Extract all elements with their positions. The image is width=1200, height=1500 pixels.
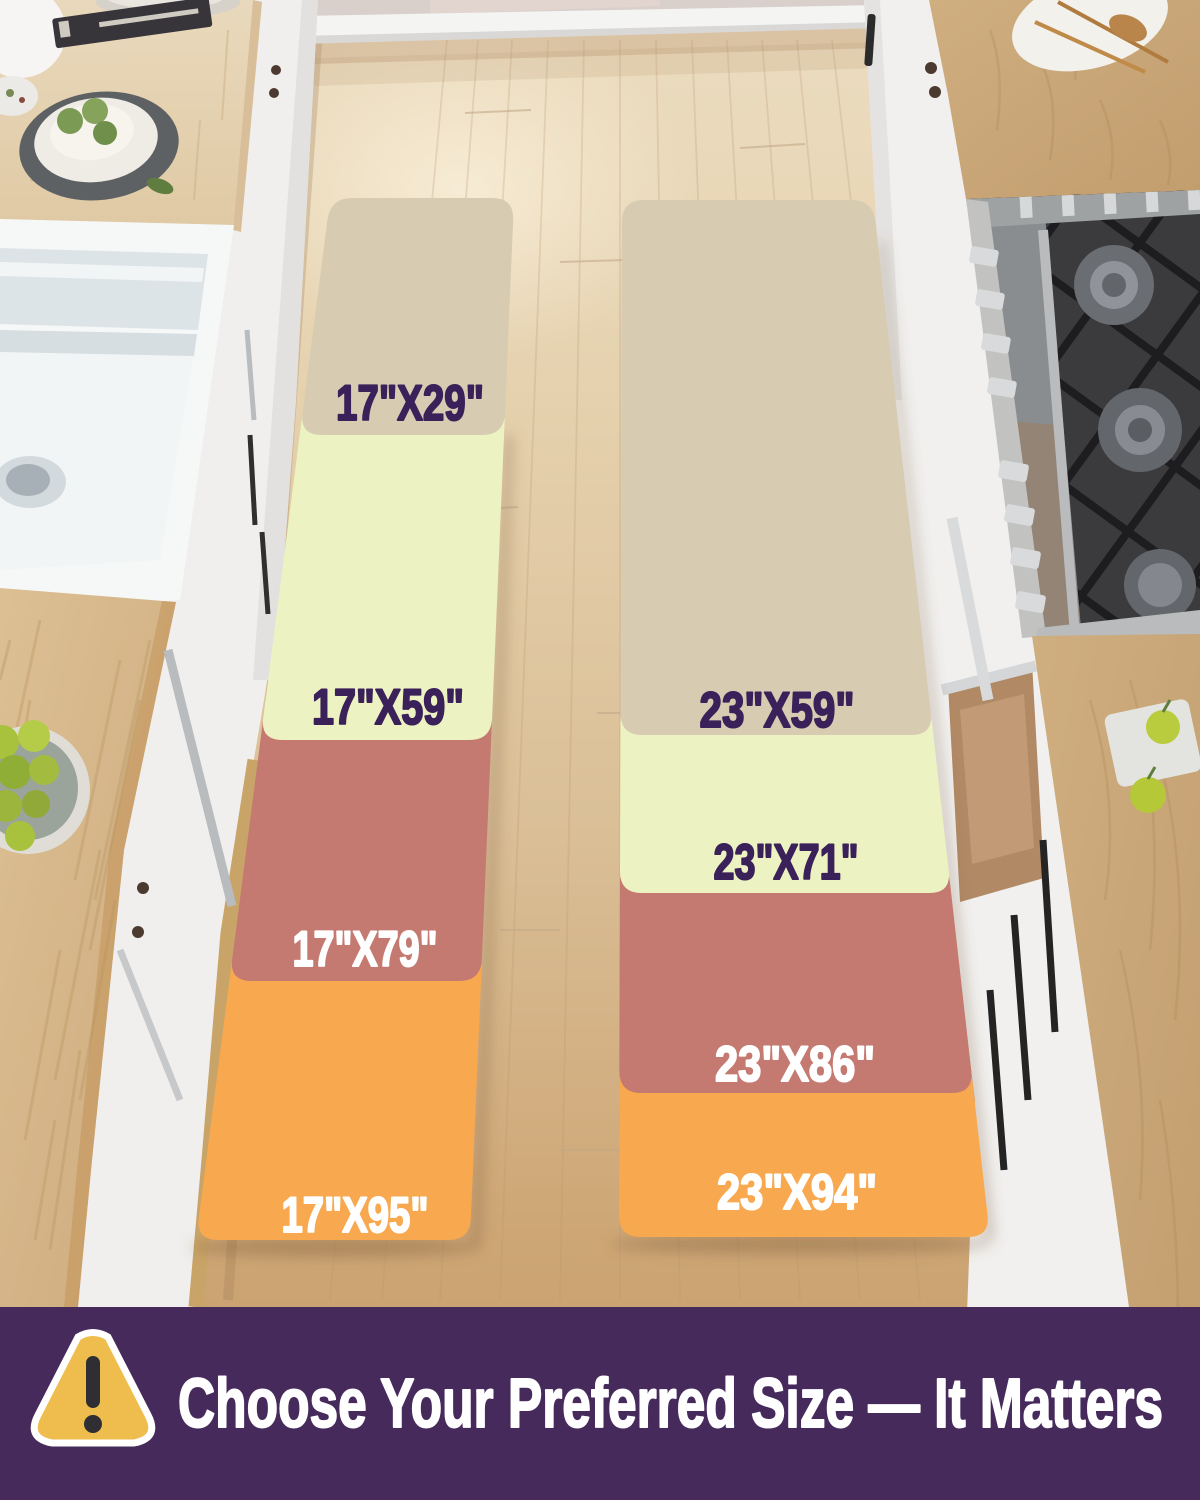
svg-text:23"X86": 23"X86" xyxy=(715,1036,875,1092)
svg-text:17"X95": 17"X95" xyxy=(282,1187,429,1243)
svg-text:23"X94": 23"X94" xyxy=(717,1164,877,1220)
svg-text:23"X71": 23"X71" xyxy=(714,834,859,890)
svg-text:17"X59": 17"X59" xyxy=(312,679,464,735)
svg-text:17"X29": 17"X29" xyxy=(336,375,484,431)
svg-text:17"X79": 17"X79" xyxy=(293,921,438,977)
svg-text:23"X59": 23"X59" xyxy=(700,682,855,738)
svg-text:Choose Your Preferred Size — I: Choose Your Preferred Size — It Matters xyxy=(178,1364,1163,1442)
